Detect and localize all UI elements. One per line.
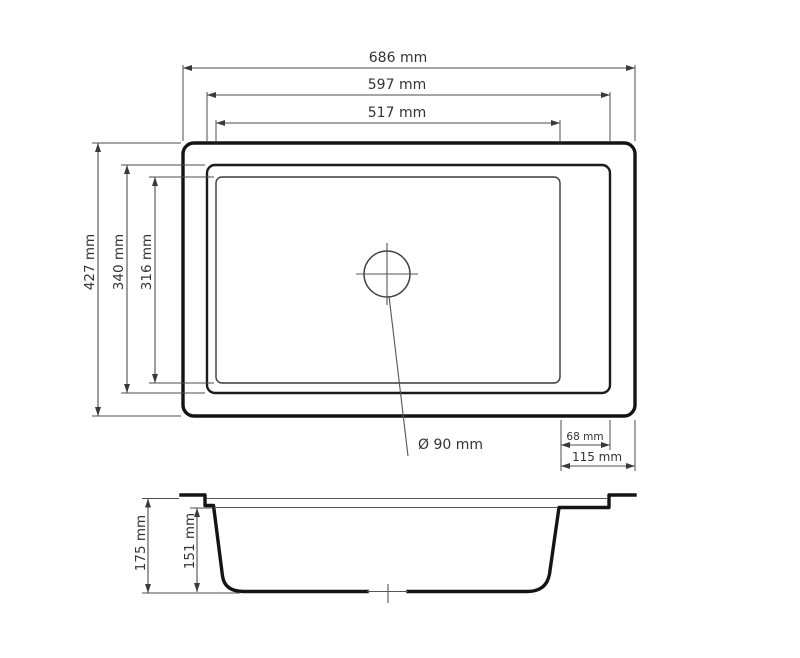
side-view [181,495,635,603]
sink-profile-right [408,495,635,592]
top-view [183,143,635,456]
dim-label-drain-diameter: Ø 90 mm [418,437,483,453]
bowl-bottom-edge [216,177,560,383]
dim-bowl-depth: 151 mm [182,508,213,592]
dim-label-outer-width: 686 mm [369,50,427,66]
dim-label-rim-width: 597 mm [368,77,426,93]
dim-label-total-depth: 175 mm [133,515,149,571]
dim-label-bowl-width: 517 mm [368,105,426,121]
dim-label-bowl-depth: 151 mm [182,513,198,569]
drawing-canvas: 686 mm 597 mm 517 mm 427 mm 340 mm 316 m… [0,0,800,658]
drain-symbol [356,243,418,305]
sink-profile-left [181,495,367,592]
dim-label-right-edge-width: 115 mm [572,450,622,464]
dim-label-outer-height: 427 mm [82,234,98,290]
bowl-top-edge [207,165,610,393]
dim-rim-height: 340 mm [111,165,205,393]
drain-leader-line [389,296,408,456]
dim-bowl-height: 316 mm [139,177,214,383]
dim-label-bowl-height: 316 mm [139,234,155,290]
sink-technical-drawing: 686 mm 597 mm 517 mm 427 mm 340 mm 316 m… [0,0,800,658]
dim-label-right-rim-width: 68 mm [566,431,603,443]
dim-bowl-width: 517 mm [216,105,560,141]
dim-outer-height: 427 mm [82,143,181,416]
dim-label-rim-height: 340 mm [111,234,127,290]
